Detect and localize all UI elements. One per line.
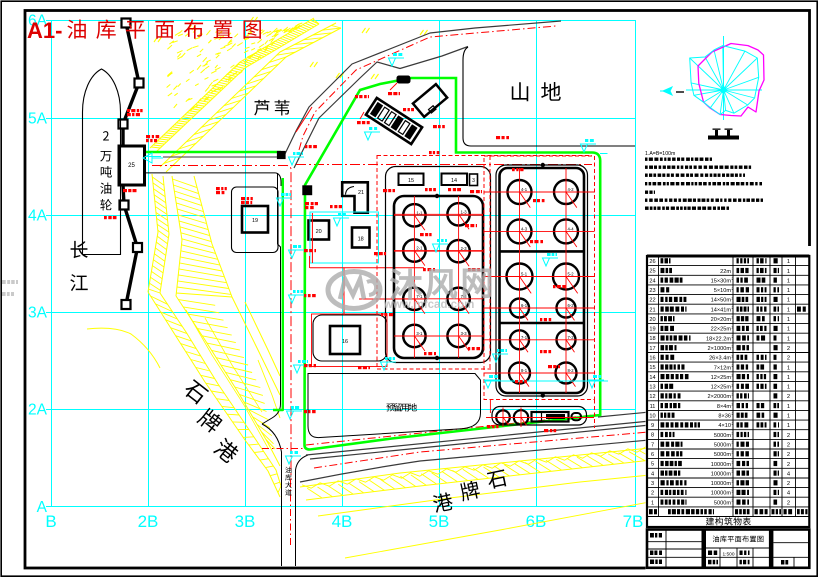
svg-text:2: 2 — [732, 277, 734, 281]
svg-text:21: 21 — [358, 190, 364, 196]
svg-text:14: 14 — [451, 178, 457, 184]
svg-text:22×25m: 22×25m — [711, 327, 732, 333]
svg-text:26×3.4m: 26×3.4m — [709, 356, 731, 362]
svg-text:20×20m: 20×20m — [711, 317, 732, 323]
svg-text:22: 22 — [649, 298, 655, 304]
svg-text:16: 16 — [649, 356, 655, 362]
svg-text:2: 2 — [732, 383, 734, 387]
svg-text:2: 2 — [732, 316, 734, 320]
svg-text:2×2000m: 2×2000m — [708, 394, 732, 400]
svg-text:2: 2 — [651, 491, 654, 497]
svg-text:15: 15 — [649, 365, 655, 371]
svg-text:2: 2 — [787, 443, 790, 449]
svg-text:4-4: 4-4 — [567, 226, 574, 231]
svg-text:2: 2 — [787, 394, 790, 400]
svg-text:10: 10 — [649, 413, 655, 419]
svg-text:4A: 4A — [28, 208, 48, 225]
svg-text:2: 2 — [787, 346, 790, 352]
svg-text:1.A=B=100m: 1.A=B=100m — [645, 151, 675, 157]
svg-text:1: 1 — [787, 298, 790, 304]
svg-text:2-3: 2-3 — [461, 246, 468, 251]
svg-text:2: 2 — [787, 481, 790, 487]
svg-text:A1-: A1- — [27, 18, 62, 43]
svg-text:1: 1 — [787, 317, 790, 323]
svg-text:5-2: 5-2 — [567, 272, 574, 277]
svg-text:1:500: 1:500 — [722, 552, 734, 558]
svg-text:12×25m: 12×25m — [711, 375, 732, 381]
svg-text:21: 21 — [649, 307, 655, 313]
svg-text:7B: 7B — [623, 512, 644, 531]
svg-text:2: 2 — [787, 500, 790, 506]
svg-text:5000m: 5000m — [714, 433, 731, 439]
svg-text:2: 2 — [787, 356, 790, 362]
svg-text:2: 2 — [787, 433, 790, 439]
svg-text:2: 2 — [732, 364, 734, 368]
svg-text:1: 1 — [787, 259, 790, 265]
svg-text:4-3: 4-3 — [521, 226, 528, 231]
svg-text:10000m: 10000m — [711, 491, 732, 497]
svg-text:3: 3 — [732, 451, 734, 455]
svg-text:5A: 5A — [28, 111, 48, 128]
svg-text:20: 20 — [316, 229, 322, 235]
svg-text:2: 2 — [732, 306, 734, 310]
svg-text:2×1000m: 2×1000m — [708, 346, 732, 352]
svg-text:3: 3 — [732, 461, 734, 465]
svg-text:9: 9 — [651, 423, 654, 429]
svg-text:1: 1 — [651, 500, 654, 506]
svg-text:2: 2 — [732, 287, 734, 291]
svg-text:4×10: 4×10 — [718, 423, 731, 429]
svg-text:19: 19 — [649, 327, 655, 333]
svg-text:2: 2 — [732, 335, 734, 339]
svg-text:3: 3 — [732, 480, 734, 484]
svg-text:10000m: 10000m — [711, 471, 732, 477]
svg-text:13: 13 — [649, 385, 655, 391]
svg-text:1: 1 — [787, 414, 790, 420]
svg-text:3: 3 — [732, 432, 734, 436]
svg-text:11: 11 — [650, 404, 656, 410]
svg-text:1: 1 — [787, 404, 790, 410]
svg-text:7×12m: 7×12m — [714, 365, 732, 371]
svg-text:3: 3 — [732, 393, 734, 397]
svg-text:3A: 3A — [28, 305, 48, 322]
svg-text:14: 14 — [649, 375, 655, 381]
svg-text:4-1: 4-1 — [521, 187, 528, 192]
svg-text:7: 7 — [651, 442, 654, 448]
svg-text:1: 1 — [787, 278, 790, 284]
svg-text:B: B — [45, 512, 56, 531]
svg-text:5000m: 5000m — [714, 452, 731, 458]
svg-text:2-1: 2-1 — [416, 246, 423, 251]
svg-text:3B: 3B — [235, 512, 256, 531]
svg-text:20: 20 — [649, 317, 655, 323]
svg-text:2B: 2B — [138, 512, 159, 531]
svg-text:2: 2 — [732, 296, 734, 300]
svg-text:1: 1 — [787, 365, 790, 371]
svg-text:1: 1 — [787, 269, 790, 275]
svg-text:14×41m: 14×41m — [711, 307, 732, 313]
svg-text:1: 1 — [787, 327, 790, 333]
svg-text:6: 6 — [651, 452, 654, 458]
svg-text:1: 1 — [787, 423, 790, 429]
svg-text:2: 2 — [732, 412, 734, 416]
svg-text:24: 24 — [649, 278, 655, 284]
svg-text:15×30m: 15×30m — [711, 278, 732, 284]
svg-text:19: 19 — [252, 218, 258, 224]
svg-text:26: 26 — [649, 259, 655, 265]
svg-text:4-2: 4-2 — [567, 187, 574, 192]
svg-text:18×22.2m: 18×22.2m — [706, 336, 731, 342]
svg-text:5: 5 — [651, 462, 654, 468]
svg-text:8-2: 8-2 — [567, 368, 574, 373]
svg-text:10000m: 10000m — [711, 481, 732, 487]
svg-text:16: 16 — [342, 339, 348, 345]
svg-text:2: 2 — [732, 354, 734, 358]
svg-text:3: 3 — [732, 499, 734, 503]
svg-text:2: 2 — [787, 462, 790, 468]
svg-text:22m: 22m — [720, 269, 731, 275]
svg-text:7-1: 7-1 — [521, 335, 528, 340]
svg-text:3: 3 — [651, 481, 654, 487]
svg-text:25: 25 — [128, 163, 135, 169]
svg-text:5000m: 5000m — [714, 443, 731, 449]
svg-text:18: 18 — [358, 237, 364, 243]
svg-text:15: 15 — [408, 178, 414, 184]
svg-text:2: 2 — [732, 325, 734, 329]
svg-text:2: 2 — [787, 452, 790, 458]
svg-text:6-1: 6-1 — [521, 303, 528, 308]
svg-text:3-1: 3-1 — [416, 331, 423, 336]
svg-text:18: 18 — [649, 336, 655, 342]
svg-text:14×50m: 14×50m — [711, 298, 732, 304]
svg-text:12: 12 — [649, 394, 655, 400]
svg-text:2: 2 — [732, 403, 734, 407]
svg-text:3: 3 — [732, 470, 734, 474]
svg-text:2: 2 — [732, 374, 734, 378]
svg-text:8: 8 — [651, 433, 654, 439]
svg-text:4B: 4B — [332, 512, 353, 531]
svg-text:2A: 2A — [28, 402, 48, 419]
svg-text:6-2: 6-2 — [567, 303, 574, 308]
svg-text:5B: 5B — [429, 512, 450, 531]
svg-text:10000m: 10000m — [711, 462, 732, 468]
svg-text:8-1: 8-1 — [521, 368, 528, 373]
svg-text:4: 4 — [651, 471, 654, 477]
svg-text:8×36: 8×36 — [718, 414, 731, 420]
svg-text:1: 1 — [787, 288, 790, 294]
svg-text:1-3: 1-3 — [461, 209, 468, 214]
svg-text:25: 25 — [649, 269, 655, 275]
svg-text:7-2: 7-2 — [567, 335, 574, 340]
svg-text:3: 3 — [732, 489, 734, 493]
svg-text:1: 1 — [787, 307, 790, 313]
svg-text:www.mfcad.com: www.mfcad.com — [383, 299, 474, 311]
svg-text:1: 1 — [787, 385, 790, 391]
svg-text:1-1: 1-1 — [416, 210, 423, 215]
svg-text:23: 23 — [649, 288, 655, 294]
svg-text:5000m: 5000m — [714, 500, 731, 506]
svg-text:1: 1 — [787, 336, 790, 342]
svg-text:3: 3 — [732, 441, 734, 445]
svg-text:5-1: 5-1 — [521, 272, 528, 277]
svg-text:3: 3 — [732, 345, 734, 349]
svg-text:3-3: 3-3 — [461, 331, 468, 336]
svg-text:2: 2 — [732, 422, 734, 426]
svg-text:1: 1 — [787, 375, 790, 381]
svg-text:5×10m: 5×10m — [714, 288, 732, 294]
svg-text:17: 17 — [649, 346, 655, 352]
svg-text:3: 3 — [472, 178, 475, 184]
svg-text:12×25m: 12×25m — [711, 385, 732, 391]
svg-text:8×4m: 8×4m — [717, 404, 731, 410]
